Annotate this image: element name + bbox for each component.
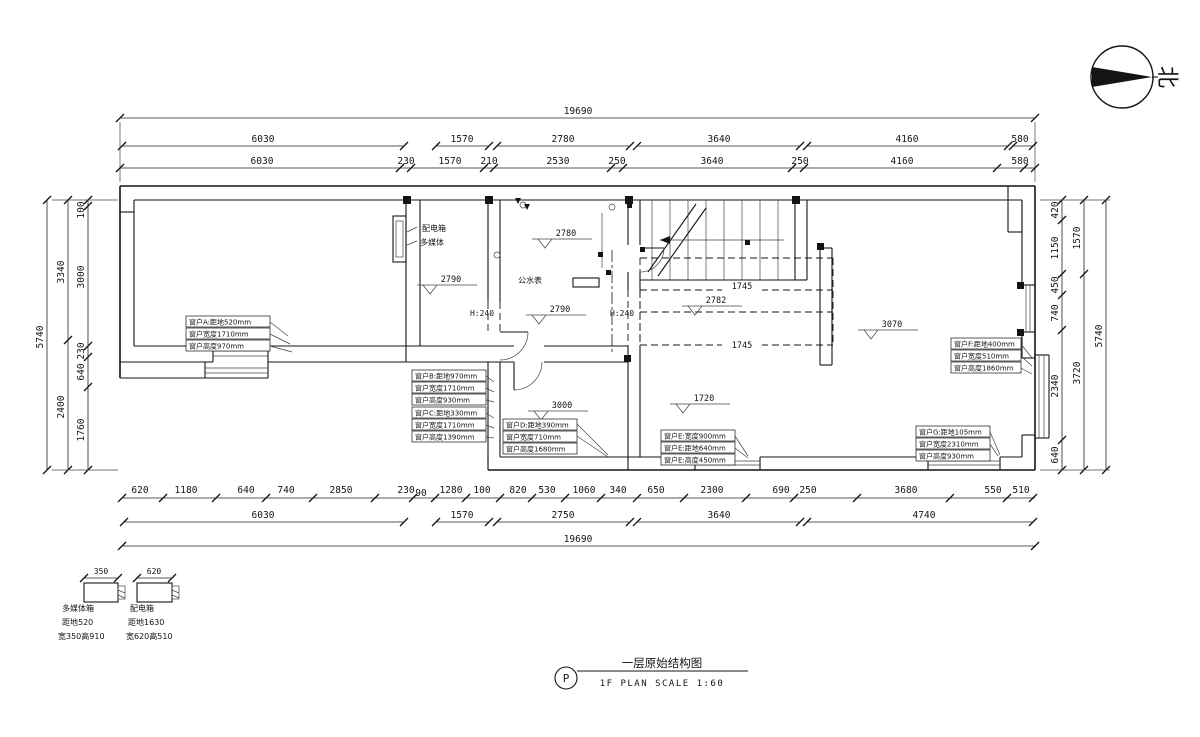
dist-box-label: 配电箱 <box>422 223 446 233</box>
svg-text:距地1630: 距地1630 <box>128 617 164 627</box>
dim-label: 250 <box>791 156 808 167</box>
anno-block-e: 窗户E:宽度900mm 窗户E:距地640mm 窗户E:高度450mm <box>661 430 748 465</box>
dim-label: 250 <box>799 485 816 496</box>
dim-label: 1570 <box>451 134 474 145</box>
anno-block-a: 窗户A:距地520mm 窗户宽度1710mm 窗户高度970mm <box>186 316 292 352</box>
svg-text:3070: 3070 <box>882 320 902 330</box>
svg-text:窗户高度970mm: 窗户高度970mm <box>189 342 244 351</box>
dim-label: 1760 <box>76 418 87 441</box>
dim-label: 1570 <box>439 156 462 167</box>
svg-text:窗户高度1390mm: 窗户高度1390mm <box>415 433 475 442</box>
dim-label: 4160 <box>891 156 914 167</box>
dim-label: 1060 <box>573 485 596 496</box>
dim-label: 3720 <box>1072 361 1083 384</box>
entry-steps <box>120 362 268 378</box>
legend: 350 多媒体箱 距地520 宽350高910 620 配电箱 距地1630 宽… <box>58 567 179 641</box>
beam-label: 1745 <box>732 282 752 292</box>
dim-label: 1570 <box>451 510 474 521</box>
dim-label: 230 <box>397 485 414 496</box>
level-marker: 2790 <box>526 305 586 324</box>
north-arrow <box>1092 67 1152 87</box>
dim-label: 740 <box>277 485 294 496</box>
dim-label: 90 <box>415 488 427 499</box>
dim-label: 3340 <box>56 260 67 283</box>
dim-label: 19690 <box>564 534 593 545</box>
dim-col-left: 5740 3340 2400 100 3000 230 640 1760 <box>35 196 118 474</box>
svg-text:2790: 2790 <box>441 275 461 285</box>
level-marker: 2790 <box>417 275 477 294</box>
svg-text:1720: 1720 <box>694 394 714 404</box>
dim-label: 450 <box>1050 276 1061 293</box>
svg-text:窗户E:宽度900mm: 窗户E:宽度900mm <box>664 432 726 441</box>
dim-label: 2850 <box>330 485 353 496</box>
dim-label: 580 <box>1011 134 1028 145</box>
dim-label: 2400 <box>56 395 67 418</box>
dim-label: 340 <box>609 485 626 496</box>
dim-label: 640 <box>237 485 254 496</box>
dim-label: 2750 <box>552 510 575 521</box>
dim-label: 2340 <box>1050 374 1061 397</box>
svg-text:3000: 3000 <box>552 401 572 411</box>
svg-text:2780: 2780 <box>556 229 576 239</box>
svg-text:2782: 2782 <box>706 296 726 306</box>
svg-text:距地520: 距地520 <box>62 617 93 627</box>
dim-label: 620 <box>131 485 148 496</box>
floorplan-drawing: 19690 6030 1570 2780 3640 4160 580 6030 … <box>0 0 1200 737</box>
svg-text:2790: 2790 <box>550 305 570 315</box>
svg-text:窗户C:距地330mm: 窗户C:距地330mm <box>415 409 477 418</box>
dim-label: 2530 <box>547 156 570 167</box>
dim-label: 5740 <box>35 325 46 348</box>
svg-text:窗户E:高度450mm: 窗户E:高度450mm <box>664 456 726 465</box>
dim-label: 510 <box>1012 485 1029 496</box>
svg-text:多媒体箱: 多媒体箱 <box>62 603 94 613</box>
drawing-subtitle: 1F PLAN SCALE 1:60 <box>600 679 725 689</box>
north-compass: 北 <box>1091 46 1179 108</box>
height-label: H:240 <box>610 309 634 318</box>
dim-label: 4160 <box>896 134 919 145</box>
dim-label: 1180 <box>175 485 198 496</box>
window-f <box>1022 285 1035 332</box>
north-label: 北 <box>1154 66 1179 88</box>
anno-block-f: 窗户F:距地400mm 窗户宽度510mm 窗户高度1860mm <box>951 338 1032 374</box>
level-marker: 3000 <box>528 401 588 420</box>
water-meter-label: 公水表 <box>518 275 542 285</box>
dim-label: 3640 <box>708 510 731 521</box>
drawing-title: 一层原始结构图 <box>622 656 703 670</box>
svg-text:窗户D:距地390mm: 窗户D:距地390mm <box>506 421 569 430</box>
doors <box>500 248 664 390</box>
svg-text:窗户宽度1710mm: 窗户宽度1710mm <box>415 384 475 393</box>
title-block: P 一层原始结构图 1F PLAN SCALE 1:60 <box>555 656 748 689</box>
dim-label: 210 <box>480 156 497 167</box>
svg-text:窗户宽度710mm: 窗户宽度710mm <box>506 433 561 442</box>
svg-text:窗户F:距地400mm: 窗户F:距地400mm <box>954 340 1015 349</box>
dim-label: 3640 <box>701 156 724 167</box>
dim-label: 740 <box>1050 304 1061 321</box>
svg-text:配电箱: 配电箱 <box>130 603 154 613</box>
dim-label: 230 <box>76 342 87 359</box>
dim-label: 3000 <box>76 265 87 288</box>
dim-label: 2780 <box>552 134 575 145</box>
svg-text:窗户高度1860mm: 窗户高度1860mm <box>954 364 1014 373</box>
level-marker: 1720 <box>670 394 730 413</box>
multimedia-label: 多媒体 <box>420 237 444 247</box>
dim-label: 100 <box>76 201 87 218</box>
beam-label: 1745 <box>732 341 752 351</box>
dim-label: 3640 <box>708 134 731 145</box>
dim-label: 1570 <box>1072 226 1083 249</box>
svg-text:窗户宽度1710mm: 窗户宽度1710mm <box>189 330 249 339</box>
svg-text:窗户高度1680mm: 窗户高度1680mm <box>506 445 566 454</box>
anno-block-g: 窗户G:距地105mm 窗户宽度2310mm 窗户高度930mm <box>916 426 1000 461</box>
svg-text:窗户A:距地520mm: 窗户A:距地520mm <box>189 318 251 327</box>
dim-label: 640 <box>1050 446 1061 463</box>
dim-label: 580 <box>1011 156 1028 167</box>
dim-label: 690 <box>772 485 789 496</box>
legend-multimedia-box: 350 多媒体箱 距地520 宽350高910 <box>58 567 125 641</box>
svg-text:宽620高510: 宽620高510 <box>126 631 173 641</box>
anno-block-c: 窗户C:距地330mm 窗户宽度1710mm 窗户高度1390mm <box>412 407 494 442</box>
level-marker: 3070 <box>858 320 918 339</box>
svg-text:窗户B:距地970mm: 窗户B:距地970mm <box>415 372 477 381</box>
legend-distribution-box: 620 配电箱 距地1630 宽620高510 <box>126 567 179 641</box>
stairs <box>640 200 795 280</box>
dim-label: 820 <box>509 485 526 496</box>
dim-label: 3680 <box>895 485 918 496</box>
svg-text:窗户高度930mm: 窗户高度930mm <box>919 452 974 461</box>
svg-text:窗户高度930mm: 窗户高度930mm <box>415 396 470 405</box>
dim-row-bottom-axes: 6030 1570 2750 3640 4740 <box>120 510 1037 526</box>
dim-col-right: 420 1150 450 740 2340 640 1570 3720 5740 <box>1040 196 1110 474</box>
dim-label: 6030 <box>251 156 274 167</box>
anno-block-d: 窗户D:距地390mm 窗户宽度710mm 窗户高度1680mm <box>503 419 608 457</box>
floorplan-canvas: 19690 6030 1570 2780 3640 4160 580 6030 … <box>0 0 1200 737</box>
dim-row-top-detail: 6030 230 1570 210 2530 250 3640 250 4160… <box>116 156 1039 172</box>
svg-text:宽350高910: 宽350高910 <box>58 631 105 641</box>
dim-label: 420 <box>1050 201 1061 218</box>
fixtures <box>393 198 750 287</box>
dim-label: 1150 <box>1050 236 1061 259</box>
anno-block-b: 窗户B:距地970mm 窗户宽度1710mm 窗户高度930mm <box>412 370 494 405</box>
svg-text:窗户E:距地640mm: 窗户E:距地640mm <box>664 444 726 453</box>
dim-label: 6030 <box>252 134 275 145</box>
dim-label: 250 <box>608 156 625 167</box>
dim-label: 4740 <box>913 510 936 521</box>
dim-row-bottom-detail: 620 1180 640 740 2850 230 90 1280 100 82… <box>118 485 1037 502</box>
dim-row-top-axes: 6030 1570 2780 3640 4160 580 <box>118 134 1037 150</box>
svg-text:窗户宽度510mm: 窗户宽度510mm <box>954 352 1009 361</box>
svg-text:窗户G:距地105mm: 窗户G:距地105mm <box>919 428 982 437</box>
dim-label: 6030 <box>252 510 275 521</box>
dim-label: 550 <box>984 485 1001 496</box>
svg-text:窗户宽度1710mm: 窗户宽度1710mm <box>415 421 475 430</box>
dim-label: 19690 <box>564 106 593 117</box>
dim-label: 530 <box>538 485 555 496</box>
dim-label: 620 <box>147 567 162 576</box>
dim-label: 5740 <box>1094 324 1105 347</box>
dim-label: 100 <box>473 485 490 496</box>
height-label: H:240 <box>470 309 494 318</box>
dim-row-bottom-total: 19690 <box>118 534 1039 550</box>
dim-label: 350 <box>94 567 109 576</box>
dim-label: 1280 <box>440 485 463 496</box>
dim-label: 2300 <box>701 485 724 496</box>
dim-label: 640 <box>76 363 87 380</box>
dim-label: 650 <box>647 485 664 496</box>
dim-label: 230 <box>397 156 414 167</box>
svg-text:窗户宽度2310mm: 窗户宽度2310mm <box>919 440 979 449</box>
level-marker: 2780 <box>532 229 592 248</box>
title-bubble-letter: P <box>563 672 570 685</box>
